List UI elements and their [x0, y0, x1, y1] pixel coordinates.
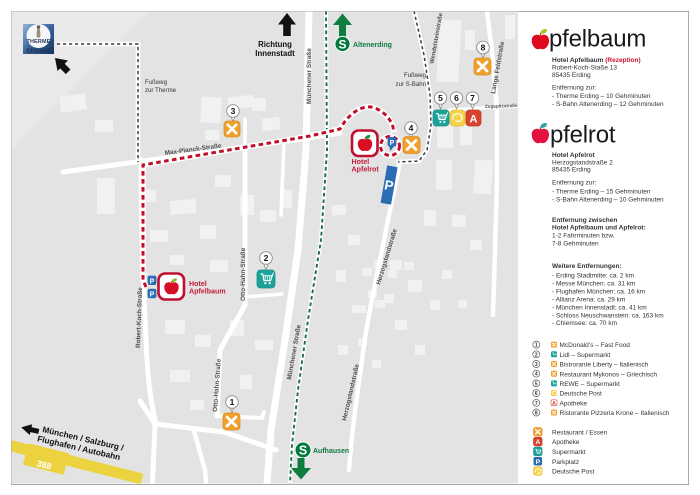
svg-text:7-8 Gehminuten: 7-8 Gehminuten [552, 241, 599, 248]
svg-text:3: 3 [231, 106, 236, 116]
svg-text:Hotel Apfelrot: Hotel Apfelrot [552, 152, 596, 159]
svg-text:Innenstadt: Innenstadt [255, 49, 295, 58]
svg-text:6: 6 [454, 93, 459, 103]
svg-text:3: 3 [535, 362, 538, 368]
svg-text:- Erding Stadtmitte: ca. 2 km: - Erding Stadtmitte: ca. 2 km [552, 273, 634, 280]
svg-text:4: 4 [535, 372, 538, 378]
svg-text:- Therme Erding – 10 Gehminute: - Therme Erding – 10 Gehminuten [552, 93, 651, 100]
svg-text:Fußweg: Fußweg [404, 72, 426, 79]
svg-text:7: 7 [470, 93, 475, 103]
svg-text:pfelrot: pfelrot [550, 122, 616, 149]
svg-text:ERDING: ERDING [27, 49, 51, 55]
svg-text:P: P [150, 292, 155, 299]
svg-text:Apotheke: Apotheke [560, 400, 588, 407]
svg-text:A: A [470, 114, 478, 126]
svg-text:Aufhausen: Aufhausen [313, 448, 349, 455]
svg-text:1: 1 [230, 397, 235, 407]
svg-text:Lidl – Supermarkt: Lidl – Supermarkt [560, 352, 611, 359]
svg-text:1: 1 [535, 343, 538, 349]
svg-text:Fußweg: Fußweg [145, 79, 167, 86]
svg-text:S: S [338, 37, 346, 51]
svg-text:- München Innenstadt: ca. 41 k: - München Innenstadt: ca. 41 km [552, 304, 647, 311]
svg-text:Richtung: Richtung [258, 40, 292, 49]
svg-text:5: 5 [438, 93, 443, 103]
svg-text:P: P [390, 140, 395, 147]
svg-text:zur S-Bahn: zur S-Bahn [396, 81, 426, 88]
svg-text:A: A [552, 401, 556, 407]
svg-text:1-2 Fahrminuten bzw.: 1-2 Fahrminuten bzw. [552, 233, 615, 240]
svg-text:Restaurant / Essen: Restaurant / Essen [552, 429, 608, 436]
svg-text:8: 8 [481, 43, 486, 53]
svg-text:Robert-Koch-Staße 13: Robert-Koch-Staße 13 [552, 65, 617, 72]
svg-text:Supermarkt: Supermarkt [552, 449, 586, 456]
svg-text:Münchener Straße: Münchener Straße [306, 48, 313, 104]
svg-text:Entfernung zur:: Entfernung zur: [552, 180, 597, 187]
svg-text:- Schloss Neuschwanstein: ca.: - Schloss Neuschwanstein: ca. 163 km [552, 312, 664, 319]
svg-text:- Chiemsee: ca. 70 km: - Chiemsee: ca. 70 km [552, 320, 617, 327]
svg-text:Bistrorante Liberty – Italieni: Bistrorante Liberty – Italienisch [560, 362, 649, 369]
svg-text:4: 4 [409, 123, 414, 133]
svg-text:Altenerding: Altenerding [353, 42, 392, 49]
svg-text:85435 Erding: 85435 Erding [552, 167, 591, 174]
svg-text:- Messe München: ca. 31 km: - Messe München: ca. 31 km [552, 281, 635, 288]
svg-text:85435 Erding: 85435 Erding [552, 72, 591, 79]
svg-text:Entfernung zwischen: Entfernung zwischen [552, 217, 617, 224]
svg-text:Otto-Hahn-Straße: Otto-Hahn-Straße [240, 247, 247, 301]
svg-text:McDonald’s – Fast Food: McDonald’s – Fast Food [560, 342, 631, 349]
svg-text:2: 2 [535, 352, 538, 358]
svg-text:pfelbaum: pfelbaum [549, 26, 646, 53]
svg-text:Hotel Apfelbaum und Apfelrot:: Hotel Apfelbaum und Apfelrot: [552, 224, 646, 231]
svg-text:8: 8 [535, 411, 538, 417]
svg-text:5: 5 [535, 381, 538, 387]
svg-text:Hotel Apfelbaum (Rezeption): Hotel Apfelbaum (Rezeption) [552, 57, 641, 64]
svg-text:THERME: THERME [27, 39, 51, 45]
svg-text:Apfelbaum: Apfelbaum [189, 287, 226, 295]
svg-text:Weitere Entfernungen:: Weitere Entfernungen: [552, 263, 622, 270]
svg-text:- S-Bahn Altenerding – 10 Gehm: - S-Bahn Altenerding – 10 Gehminuten [552, 196, 664, 203]
svg-text:Restaurant Mykonos – Griechisc: Restaurant Mykonos – Griechisch [560, 371, 658, 378]
svg-text:Ristorante Pizzeria Krone – It: Ristorante Pizzeria Krone – Italienisch [560, 410, 670, 417]
svg-text:Entfernung zur:: Entfernung zur: [552, 85, 597, 92]
svg-text:S: S [299, 444, 307, 458]
svg-text:7: 7 [535, 401, 538, 407]
svg-text:Deutsche Post: Deutsche Post [552, 469, 594, 476]
svg-text:- Flughafen München: ca. 16 km: - Flughafen München: ca. 16 km [552, 289, 645, 296]
svg-text:2: 2 [264, 253, 269, 263]
svg-text:Apotheke: Apotheke [552, 439, 580, 446]
svg-text:Herzogstandstraße 2: Herzogstandstraße 2 [552, 159, 613, 166]
svg-text:- S-Bahn Altenerding – 12 Gehm: - S-Bahn Altenerding – 12 Gehminuten [552, 101, 664, 108]
svg-text:zur Therme: zur Therme [145, 87, 177, 94]
svg-text:P: P [536, 459, 541, 466]
svg-text:REWE – Supermarkt: REWE – Supermarkt [560, 381, 621, 388]
svg-text:Apfelrot: Apfelrot [352, 166, 380, 174]
svg-text:- Allianz Arena: ca. 29 km: - Allianz Arena: ca. 29 km [552, 297, 625, 304]
svg-text:- Therme Erding – 15 Gehminute: - Therme Erding – 15 Gehminuten [552, 188, 651, 195]
svg-text:Parkplatz: Parkplatz [552, 459, 579, 466]
svg-text:A: A [536, 439, 541, 446]
svg-text:Deutsche Post: Deutsche Post [560, 391, 602, 398]
svg-text:6: 6 [535, 391, 538, 397]
svg-text:P: P [150, 278, 155, 285]
